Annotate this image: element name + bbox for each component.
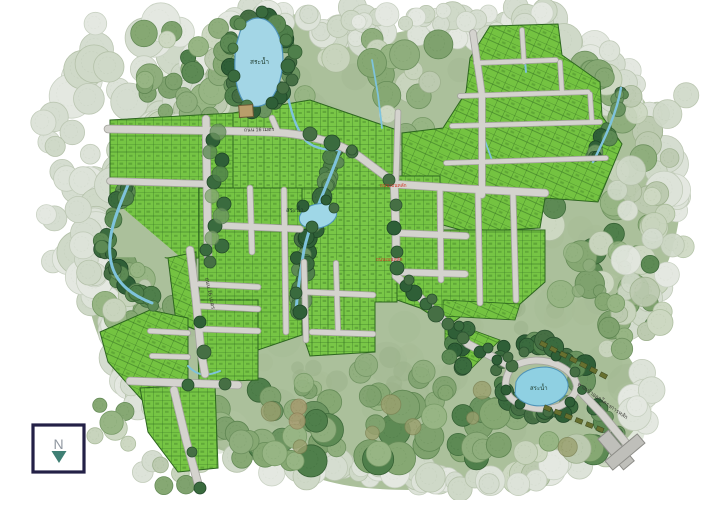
- svg-text:ถนนเมนหลัก: ถนนเมนหลัก: [376, 257, 403, 263]
- svg-text:N: N: [53, 436, 63, 452]
- svg-text:สระน้ำ: สระน้ำ: [250, 57, 269, 66]
- svg-text:ถนนเมนหลัก: ถนนเมนหลัก: [380, 183, 407, 189]
- svg-text:ถนน 16 เมตร: ถนน 16 เมตร: [244, 127, 275, 134]
